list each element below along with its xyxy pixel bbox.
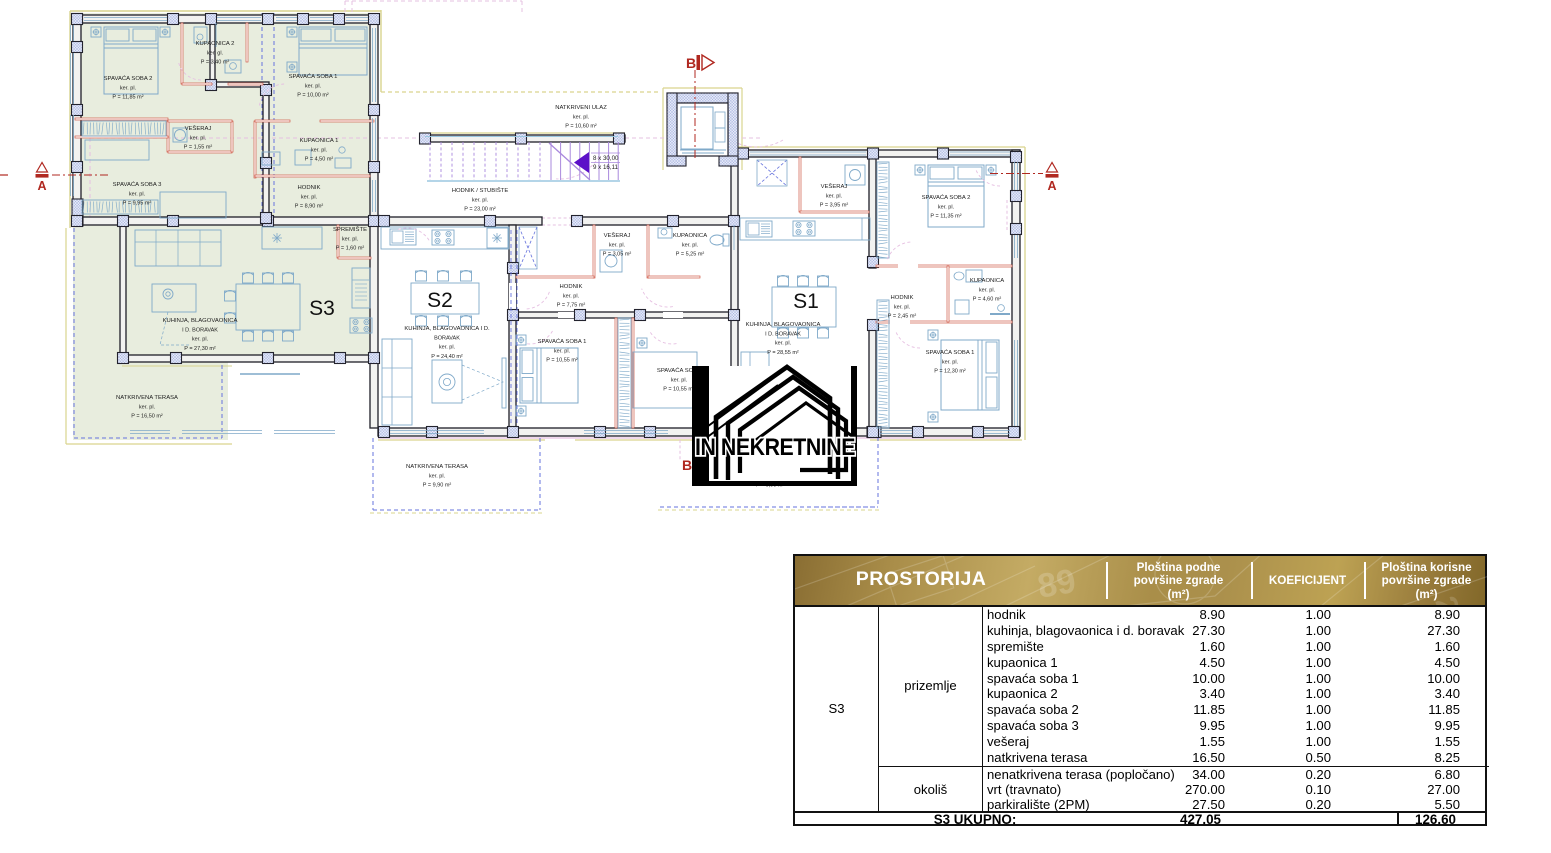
svg-text:ker. pl.: ker. pl. [192, 337, 209, 343]
svg-text:ker. pl.: ker. pl. [609, 242, 626, 248]
svg-text:KUPAONICA 1: KUPAONICA 1 [300, 138, 339, 144]
svg-text:A: A [1047, 179, 1056, 193]
svg-text:P = 12,30 m²: P = 12,30 m² [934, 369, 966, 375]
svg-text:P = 1,60 m²: P = 1,60 m² [336, 246, 365, 252]
svg-text:HODNIK: HODNIK [298, 185, 321, 191]
svg-text:ker. pl.: ker. pl. [775, 341, 792, 347]
svg-text:SPAVAĆA SOBA 2: SPAVAĆA SOBA 2 [104, 75, 153, 82]
svg-text:ker. pl.: ker. pl. [573, 114, 590, 120]
svg-text:HODNIK: HODNIK [560, 284, 583, 290]
svg-text:P = 3,95 m²: P = 3,95 m² [820, 203, 849, 209]
svg-text:P = 11,35 m²: P = 11,35 m² [930, 214, 961, 220]
svg-text:P = 1,55 m²: P = 1,55 m² [184, 145, 213, 151]
svg-text:HODNIK: HODNIK [891, 295, 914, 301]
svg-text:KUHINJA, BLAGOVAONICA: KUHINJA, BLAGOVAONICA [746, 322, 821, 328]
svg-text:P = 9,95 m²: P = 9,95 m² [123, 201, 152, 207]
svg-text:SPAVAĆA SOBA 1: SPAVAĆA SOBA 1 [289, 73, 338, 80]
svg-text:P = 4,60 m²: P = 4,60 m² [973, 297, 1002, 303]
svg-text:ker. pl.: ker. pl. [190, 135, 207, 141]
svg-text:KUPAONICA 2: KUPAONICA 2 [196, 41, 235, 47]
svg-text:P = 28,55 m²: P = 28,55 m² [767, 350, 799, 356]
svg-text:SPAVAĆA SOBA 1: SPAVAĆA SOBA 1 [926, 349, 975, 356]
svg-text:I D. BORAVAK: I D. BORAVAK [182, 327, 218, 333]
svg-text:KUHINJA, BLAGOVAONICA: KUHINJA, BLAGOVAONICA [163, 318, 238, 324]
svg-text:P = 23,00 m²: P = 23,00 m² [464, 207, 496, 213]
svg-text:ker. pl.: ker. pl. [563, 293, 580, 299]
svg-text:ker. pl.: ker. pl. [342, 236, 359, 242]
svg-text:P = 2,45 m²: P = 2,45 m² [888, 314, 917, 320]
svg-text:VEŠERAJ: VEŠERAJ [185, 125, 212, 132]
svg-text:ker. pl.: ker. pl. [554, 348, 571, 354]
svg-text:SPAVAĆA SOBA 2: SPAVAĆA SOBA 2 [922, 194, 971, 201]
svg-text:9 x 16,11: 9 x 16,11 [593, 164, 619, 171]
svg-text:SPAVAĆA SOBA 3: SPAVAĆA SOBA 3 [113, 181, 163, 188]
svg-text:P = 3,40 m²: P = 3,40 m² [201, 60, 230, 66]
svg-text:NATKRIVENA TERASA: NATKRIVENA TERASA [116, 395, 178, 401]
svg-text:ker. pl.: ker. pl. [671, 377, 688, 383]
svg-text:ker. pl.: ker. pl. [439, 345, 456, 351]
svg-text:KUHINJA, BLAGOVAONICA I D.: KUHINJA, BLAGOVAONICA I D. [404, 326, 490, 332]
svg-text:P = 27,30 m²: P = 27,30 m² [184, 346, 216, 352]
svg-text:NATKRIVENA TERASA: NATKRIVENA TERASA [406, 464, 468, 470]
svg-text:ker. pl.: ker. pl. [826, 193, 843, 199]
svg-text:ker. pl.: ker. pl. [472, 197, 489, 203]
svg-text:P = 16,50 m²: P = 16,50 m² [131, 414, 163, 420]
svg-text:VEŠERAJ: VEŠERAJ [821, 183, 848, 190]
svg-text:P = 7,75 m²: P = 7,75 m² [557, 303, 586, 309]
svg-text:ker. pl.: ker. pl. [938, 204, 955, 210]
svg-text:BORAVAK: BORAVAK [434, 335, 460, 341]
svg-text:SPAVAĆA SOBA 1: SPAVAĆA SOBA 1 [538, 338, 587, 345]
svg-text:B: B [682, 457, 692, 473]
svg-text:ker. gl.: ker. gl. [207, 50, 224, 56]
svg-text:ker. pl.: ker. pl. [894, 304, 911, 310]
svg-text:P = 9,90 m²: P = 9,90 m² [423, 483, 452, 489]
svg-text:ker. pl.: ker. pl. [682, 242, 699, 248]
svg-text:ker. pl.: ker. pl. [129, 191, 146, 197]
svg-text:ker. pl.: ker. pl. [301, 194, 318, 200]
svg-text:ker. pl.: ker. pl. [305, 83, 322, 89]
svg-text:P = 11,85 m²: P = 11,85 m² [112, 95, 143, 101]
svg-text:IN NEKRETNINE: IN NEKRETNINE [695, 434, 855, 461]
svg-text:8 x 30,00: 8 x 30,00 [593, 155, 619, 162]
svg-text:P = 10,55 m²: P = 10,55 m² [663, 387, 695, 393]
svg-text:S2: S2 [427, 289, 453, 312]
svg-text:I D. BORAVAK: I D. BORAVAK [765, 331, 801, 337]
svg-text:KUPAONICA: KUPAONICA [673, 233, 707, 239]
svg-text:A: A [37, 179, 46, 193]
svg-text:NATKRIVENI ULAZ: NATKRIVENI ULAZ [555, 105, 607, 111]
svg-text:S3: S3 [309, 297, 335, 320]
svg-text:ker. pl.: ker. pl. [311, 147, 328, 153]
svg-text:P = 24,40 m²: P = 24,40 m² [431, 354, 463, 360]
svg-text:ker. pl.: ker. pl. [979, 287, 996, 293]
svg-text:P = 10,60 m²: P = 10,60 m² [565, 124, 597, 130]
svg-text:P = 3,05 m²: P = 3,05 m² [603, 252, 632, 258]
svg-text:B: B [686, 55, 696, 71]
svg-text:ker. pl.: ker. pl. [429, 473, 446, 479]
svg-text:ker. pl.: ker. pl. [120, 85, 137, 91]
svg-text:ker. pl.: ker. pl. [942, 359, 959, 365]
svg-text:VEŠERAJ: VEŠERAJ [604, 232, 631, 239]
svg-text:P = 8,90 m²: P = 8,90 m² [295, 204, 324, 210]
svg-text:S1: S1 [793, 290, 819, 313]
svg-text:P = 4,50 m²: P = 4,50 m² [305, 157, 334, 163]
svg-text:P = 10,55 m²: P = 10,55 m² [546, 358, 578, 364]
svg-text:P = 5,25 m²: P = 5,25 m² [676, 252, 705, 258]
svg-text:ker. pl.: ker. pl. [139, 404, 156, 410]
svg-text:HODNIK / STUBIŠTE: HODNIK / STUBIŠTE [452, 187, 509, 194]
svg-text:KUPAONICA: KUPAONICA [970, 278, 1004, 284]
svg-text:P = 10,00 m²: P = 10,00 m² [297, 93, 329, 99]
svg-text:SPREMIŠTE: SPREMIŠTE [333, 226, 367, 233]
